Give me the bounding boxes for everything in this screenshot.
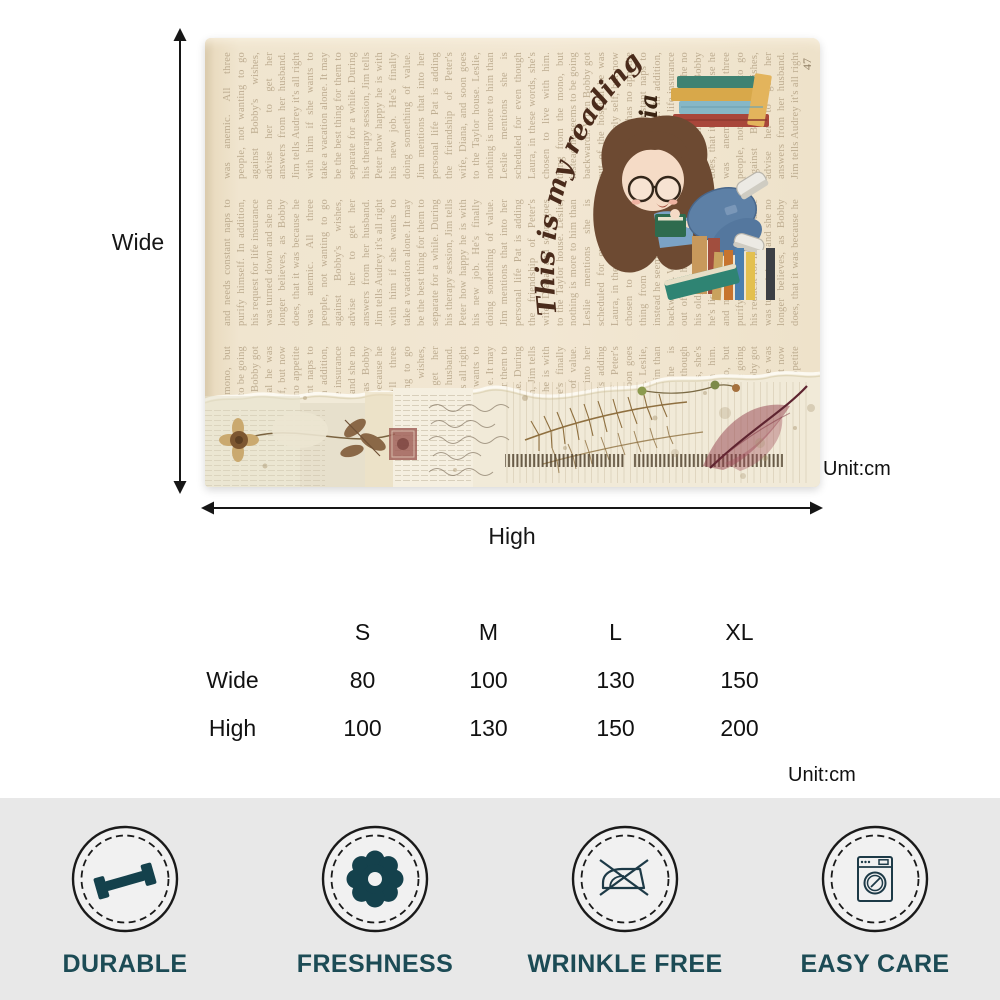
no-iron-icon [570, 824, 680, 934]
size-table: S M L XL Wide 80 100 130 150 High 100 13… [165, 608, 800, 752]
table-row-label-wide: Wide [165, 656, 300, 704]
feature-durable: DURABLE [0, 798, 250, 1000]
feature-label: WRINKLE FREE [527, 950, 722, 979]
wide-dimension-arrow [168, 28, 192, 494]
table-cell-high-xl: 200 [679, 704, 800, 752]
table-row-label-high: High [165, 704, 300, 752]
wide-label: Wide [88, 229, 188, 256]
collage-strip [205, 373, 820, 487]
table-header-l: L [552, 608, 679, 656]
page-number: 47 [800, 58, 814, 70]
feature-easy-care: EASY CARE [750, 798, 1000, 1000]
washing-machine-icon [820, 824, 930, 934]
features-band: DURABLE FRESHNESS [0, 798, 1000, 1000]
blanket-product-image: thing from the mono, but instead he seem… [205, 38, 820, 487]
flower-icon [320, 824, 430, 934]
table-header-s: S [300, 608, 425, 656]
blanket-artwork: 47 This is my reading blanket Sophia [205, 38, 820, 487]
book-stack-top [671, 73, 772, 127]
feature-label: EASY CARE [800, 950, 949, 979]
girl-illustration [593, 73, 775, 301]
high-label: High [462, 523, 562, 550]
feature-label: FRESHNESS [297, 950, 453, 979]
table-cell-high-l: 150 [552, 704, 679, 752]
table-corner-cell [165, 608, 300, 656]
dumbbell-icon [70, 824, 180, 934]
table-cell-high-s: 100 [300, 704, 425, 752]
feature-wrinkle-free: WRINKLE FREE [500, 798, 750, 1000]
table-cell-wide-m: 100 [425, 656, 552, 704]
product-size-infographic: Wide thing from the mono, but instead he… [0, 0, 1000, 1000]
table-cell-wide-s: 80 [300, 656, 425, 704]
barcode-strip [505, 454, 625, 467]
high-dimension-arrow [201, 496, 823, 520]
unit-label-top: Unit:cm [823, 458, 891, 481]
table-cell-wide-xl: 150 [679, 656, 800, 704]
feature-label: DURABLE [62, 950, 187, 979]
table-header-xl: XL [679, 608, 800, 656]
postage-stamp [389, 428, 417, 460]
table-header-m: M [425, 608, 552, 656]
girl-blush [669, 199, 678, 204]
arc-title-text: This is my reading blanket [205, 38, 655, 317]
unit-label-bottom: Unit:cm [788, 764, 856, 787]
table-cell-high-m: 130 [425, 704, 552, 752]
table-cell-wide-l: 130 [552, 656, 679, 704]
girl-blush [632, 199, 641, 204]
feature-freshness: FRESHNESS [250, 798, 500, 1000]
